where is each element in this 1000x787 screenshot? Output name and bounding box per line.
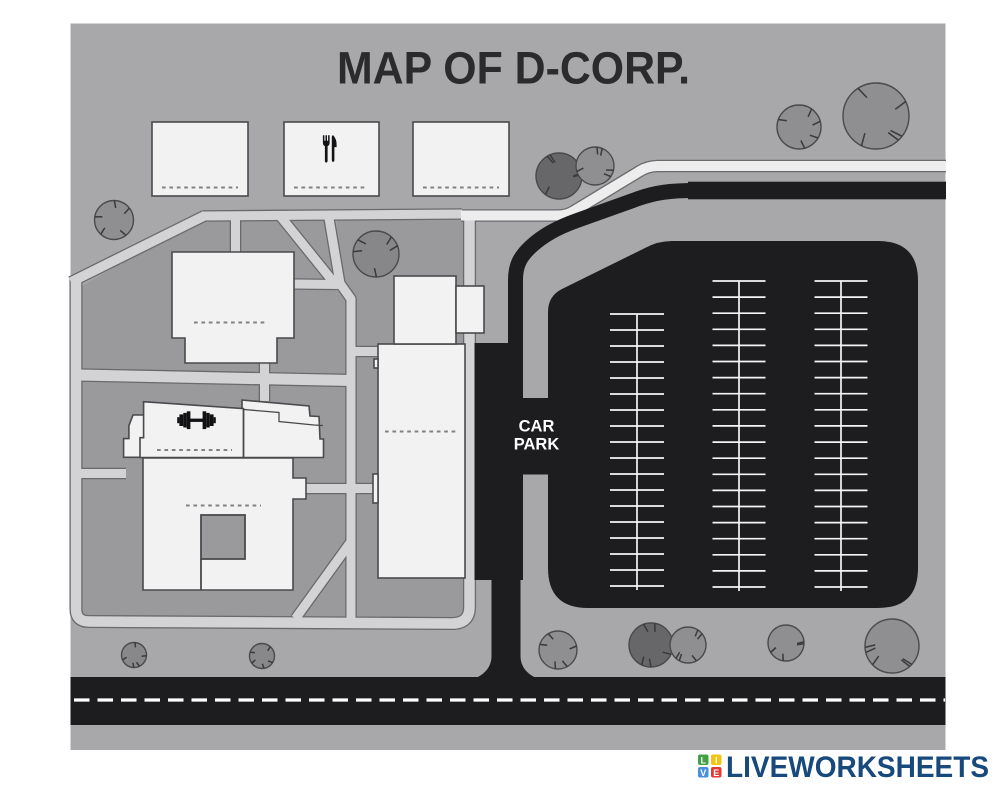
- svg-text:E: E: [713, 768, 719, 778]
- svg-text:I: I: [715, 755, 718, 765]
- svg-text:V: V: [700, 768, 706, 778]
- svg-text:PARK: PARK: [514, 436, 560, 454]
- svg-text:MAP OF D-CORP.: MAP OF D-CORP.: [337, 43, 690, 94]
- svg-text:CAR: CAR: [519, 418, 555, 436]
- svg-text:LIVEWORKSHEETS: LIVEWORKSHEETS: [726, 751, 989, 784]
- svg-text:L: L: [700, 755, 706, 765]
